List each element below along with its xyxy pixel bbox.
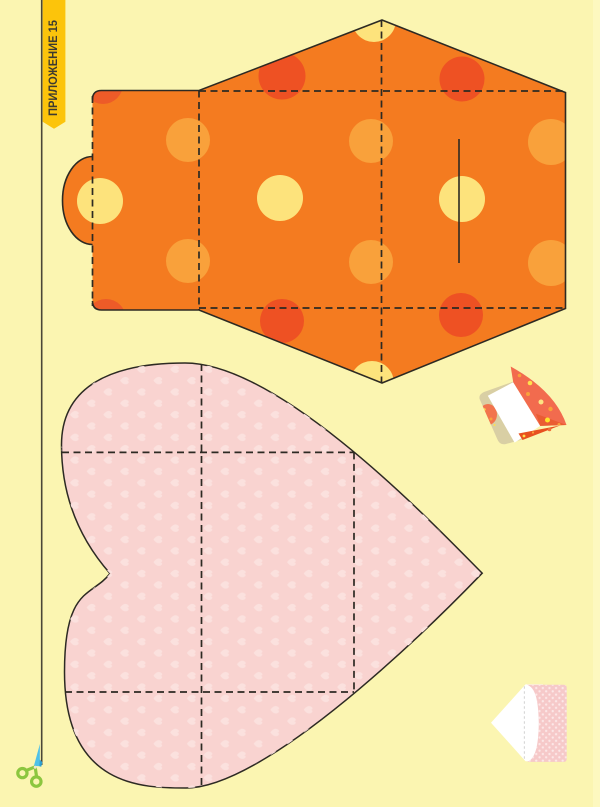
svg-text:ПРИЛОЖЕНИЕ 15: ПРИЛОЖЕНИЕ 15 — [46, 20, 60, 116]
